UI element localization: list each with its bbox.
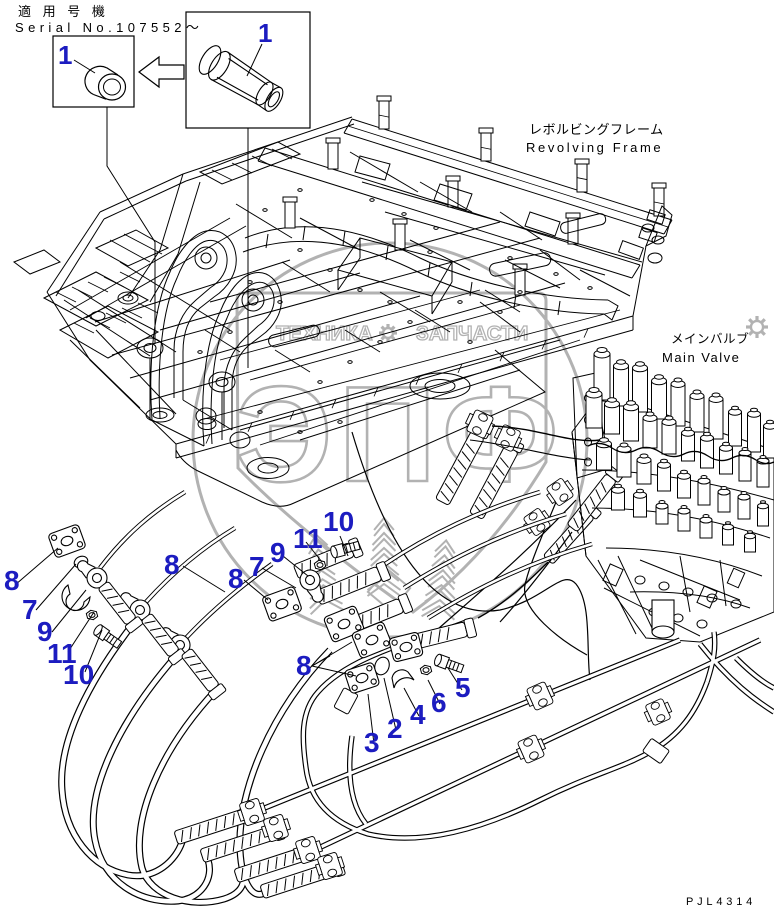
svg-text:Main Valve: Main Valve [662,350,740,365]
svg-text:1: 1 [258,18,272,48]
svg-text:11: 11 [293,523,323,554]
svg-text:9: 9 [270,537,286,568]
svg-text:8: 8 [228,563,244,594]
svg-text:10: 10 [323,506,354,537]
svg-text:7: 7 [249,551,265,582]
svg-text:8: 8 [296,650,312,681]
svg-text:2: 2 [387,713,403,744]
svg-text:6: 6 [431,687,447,718]
svg-text:5: 5 [455,672,471,703]
svg-text:メインバルブ: メインバルブ [671,331,749,346]
svg-text:8: 8 [4,565,20,596]
svg-text:10: 10 [63,659,94,690]
svg-text:7: 7 [22,594,38,625]
svg-text:8: 8 [164,549,180,580]
svg-text:Serial No.107552～: Serial No.107552～ [15,20,203,35]
svg-text:Revolving Frame: Revolving Frame [526,140,663,155]
svg-text:適 用 号 機: 適 用 号 機 [18,4,109,19]
svg-text:PJL4314: PJL4314 [686,896,756,908]
svg-text:レボルビングフレーム: レボルビングフレーム [529,122,664,137]
svg-text:1: 1 [58,40,72,70]
svg-text:4: 4 [410,699,426,730]
svg-text:3: 3 [364,727,380,758]
